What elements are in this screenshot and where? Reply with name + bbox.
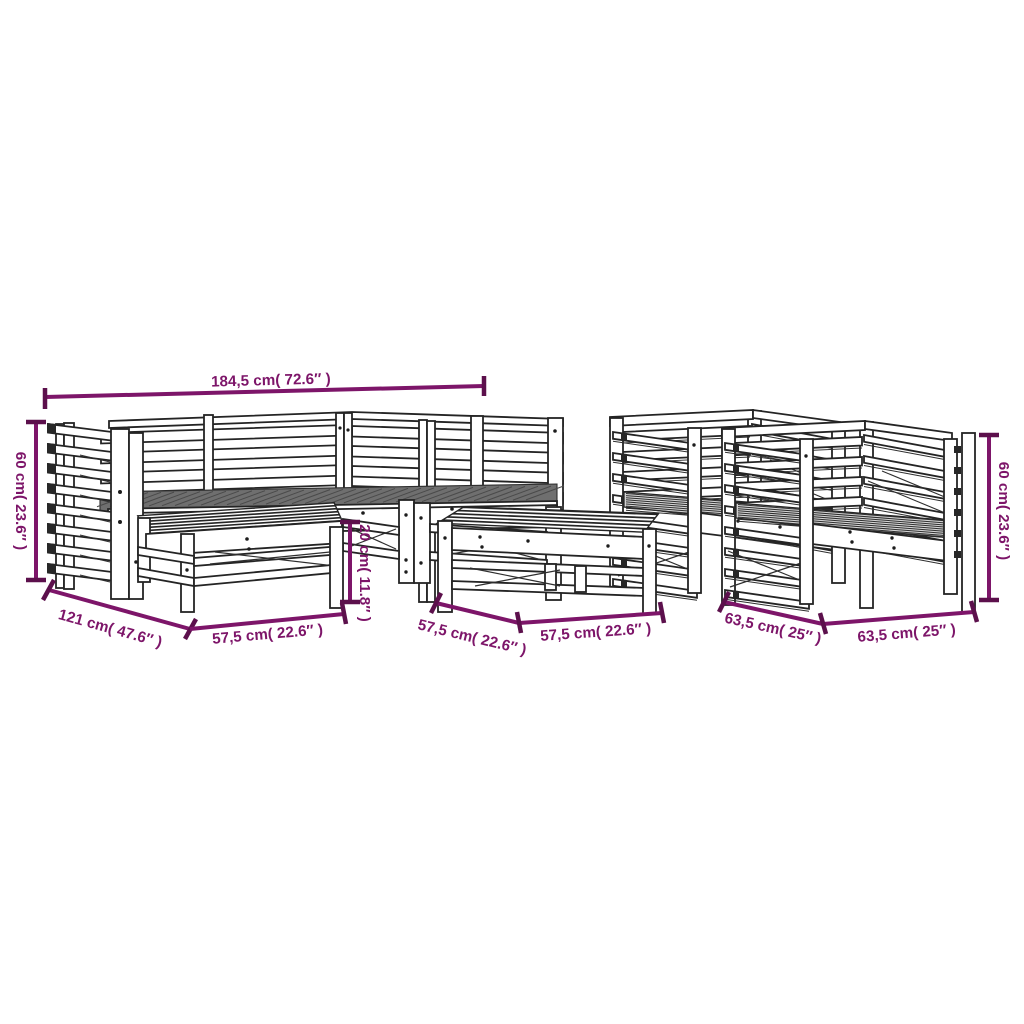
- svg-text:60 cm( 23.6″ ): 60 cm( 23.6″ ): [12, 452, 29, 550]
- svg-text:20 cm( 11.8″ ): 20 cm( 11.8″ ): [356, 524, 373, 622]
- svg-text:184,5 cm( 72.6″ ): 184,5 cm( 72.6″ ): [211, 370, 331, 390]
- svg-text:60 cm( 23.6″ ): 60 cm( 23.6″ ): [995, 462, 1012, 560]
